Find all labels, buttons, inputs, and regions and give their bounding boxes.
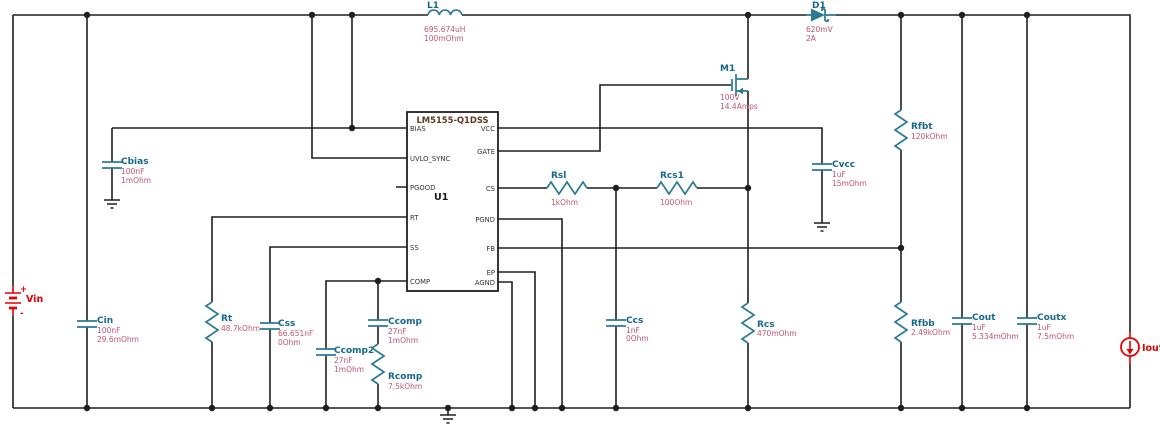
resistor-Rsl[interactable]: Rsl 1kOhm <box>547 171 587 207</box>
resistor-icon <box>895 302 907 342</box>
Rt-label: Rt <box>221 314 233 324</box>
pin-vcc: VCC <box>481 125 495 133</box>
mosfet-M1[interactable]: M1 100V 14.4Amps <box>720 64 758 111</box>
pin-pgood: PGOOD <box>410 184 435 192</box>
Vin-minus: - <box>20 309 24 319</box>
Rcs1-label: Rcs1 <box>660 171 684 181</box>
Cvcc-label: Cvcc <box>832 160 855 170</box>
pin-comp: COMP <box>410 278 430 286</box>
Ccs-label: Ccs <box>626 316 643 326</box>
resistor-Rfbt[interactable]: Rfbt 120kOhm <box>895 110 948 150</box>
capacitor-Cvcc[interactable]: Cvcc 1uF 15mOhm <box>812 160 867 188</box>
Vin-label: Vin <box>26 294 43 305</box>
ground-icon-cvcc <box>814 223 830 231</box>
ic-U1[interactable]: LM5155-Q1DSS U1 BIAS UVLO_SYNC PGOOD RT … <box>407 112 498 291</box>
Rfbt-value-0: 120kOhm <box>911 132 948 141</box>
L1-label: L1 <box>427 1 439 11</box>
D1-value-1: 2A <box>806 34 817 43</box>
capacitor-Css[interactable]: Css 66.651nF 0Ohm <box>260 319 313 347</box>
pin-rt: RT <box>410 214 419 222</box>
M1-value-0: 100V <box>720 93 740 102</box>
resistor-Rcomp[interactable]: Rcomp 7.5kOhm <box>372 344 423 391</box>
schematic-canvas: L1 695.674uH 100mOhm D1 620mV 2A M1 100V… <box>0 0 1160 438</box>
capacitor-Ccomp[interactable]: Ccomp 27nF 1mOhm <box>368 317 423 345</box>
D1-label: D1 <box>812 1 826 11</box>
L1-value-1: 100mOhm <box>424 34 464 43</box>
Rsl-value-0: 1kOhm <box>551 198 578 207</box>
capacitor-icon <box>77 321 97 327</box>
resistor-icon <box>547 182 587 194</box>
capacitor-icon <box>102 162 122 168</box>
pin-pgnd: PGND <box>475 216 495 224</box>
Cout-value-1: 5.334mOhm <box>972 332 1019 341</box>
capacitor-icon <box>606 320 626 326</box>
resistor-Rt[interactable]: Rt 48.7kOhm <box>206 302 260 342</box>
Cbias-value-1: 1mOhm <box>121 176 151 185</box>
Coutx-value-0: 1uF <box>1037 323 1051 332</box>
resistor-Rfbb[interactable]: Rfbb 2.49kOhm <box>895 302 950 342</box>
resistor-icon <box>895 110 907 150</box>
Ccomp2-label: Ccomp2 <box>334 346 374 356</box>
resistor-Rcs1[interactable]: Rcs1 100Ohm <box>657 171 697 207</box>
pin-ss: SS <box>410 244 419 252</box>
resistor-icon <box>206 302 218 342</box>
capacitor-icon <box>952 318 972 324</box>
Rfbt-label: Rfbt <box>911 122 933 132</box>
pin-cs: CS <box>486 185 495 193</box>
L1-value-0: 695.674uH <box>424 25 465 34</box>
Ccomp-label: Ccomp <box>388 317 423 327</box>
Rcomp-label: Rcomp <box>388 372 423 382</box>
Cin-value-0: 100nF <box>97 326 120 335</box>
current-source-Iout[interactable]: Iout <box>1121 332 1160 364</box>
voltage-source-Vin[interactable]: + - Vin <box>5 285 43 319</box>
capacitor-icon <box>368 320 388 326</box>
Css-label: Css <box>278 319 295 329</box>
Ccs-value-1: 0Ohm <box>626 334 649 343</box>
capacitor-Cbias[interactable]: Cbias 100nF 1mOhm <box>102 157 151 185</box>
ic-refdes: U1 <box>434 192 448 203</box>
capacitor-Coutx[interactable]: Coutx 1uF 7.5mOhm <box>1017 313 1074 341</box>
ic-part-number: LM5155-Q1DSS <box>416 115 488 125</box>
pin-gate: GATE <box>477 148 495 156</box>
Cout-label: Cout <box>972 313 996 323</box>
Coutx-label: Coutx <box>1037 313 1066 323</box>
Ccomp-value-1: 1mOhm <box>388 336 418 345</box>
pin-fb: FB <box>486 245 495 253</box>
pin-ep: EP <box>487 269 495 277</box>
Cbias-value-0: 100nF <box>121 167 144 176</box>
Css-value-1: 0Ohm <box>278 338 301 347</box>
ground-icon-cbias <box>104 200 120 208</box>
ground-icon-bottom <box>440 415 456 423</box>
resistor-icon <box>742 303 754 343</box>
Coutx-value-1: 7.5mOhm <box>1037 332 1074 341</box>
wires <box>13 15 1130 415</box>
D1-value-0: 620mV <box>806 25 834 34</box>
Cout-value-0: 1uF <box>972 323 986 332</box>
Rfbb-value-0: 2.49kOhm <box>911 328 950 337</box>
junction-dots <box>84 12 1030 411</box>
Rt-value-0: 48.7kOhm <box>221 324 260 333</box>
M1-value-1: 14.4Amps <box>720 102 758 111</box>
resistor-icon <box>372 344 384 384</box>
Ccomp-value-0: 27nF <box>388 327 407 336</box>
Ccomp2-value-1: 1mOhm <box>334 365 364 374</box>
iout-arrow-head <box>1127 349 1134 355</box>
diode-D1[interactable]: D1 620mV 2A <box>806 1 836 43</box>
Css-value-0: 66.651nF <box>278 329 313 338</box>
wire-layer <box>13 15 1130 415</box>
pin-agnd: AGND <box>475 279 495 287</box>
Cin-label: Cin <box>97 316 113 326</box>
inductor-L1[interactable]: L1 695.674uH 100mOhm <box>424 1 465 43</box>
Cvcc-value-1: 15mOhm <box>832 179 867 188</box>
capacitor-icon <box>812 164 832 170</box>
capacitor-icon <box>260 323 280 329</box>
schematic: L1 695.674uH 100mOhm D1 620mV 2A M1 100V… <box>0 0 1160 438</box>
resistor-icon <box>657 182 697 194</box>
Cbias-label: Cbias <box>121 157 149 167</box>
capacitor-icon <box>316 349 336 355</box>
pin-bias: BIAS <box>410 125 426 133</box>
Rsl-label: Rsl <box>551 171 566 181</box>
pin-uvlo-sync: UVLO_SYNC <box>410 155 450 163</box>
capacitor-Ccs[interactable]: Ccs 1nF 0Ohm <box>606 316 649 343</box>
capacitor-icon <box>1017 318 1037 324</box>
M1-label: M1 <box>720 64 735 74</box>
ic-body[interactable] <box>407 112 498 291</box>
Iout-label: Iout <box>1142 343 1160 354</box>
Rcs-value-0: 470mOhm <box>757 329 797 338</box>
Cvcc-value-0: 1uF <box>832 170 846 179</box>
Ccomp2-value-0: 27nF <box>334 356 353 365</box>
Rcomp-value-0: 7.5kOhm <box>388 382 422 391</box>
resistor-Rcs[interactable]: Rcs 470mOhm <box>742 303 797 343</box>
Cin-value-1: 29.6mOhm <box>97 335 139 344</box>
capacitor-Ccomp2[interactable]: Ccomp2 27nF 1mOhm <box>316 346 374 374</box>
Rcs1-value-0: 100Ohm <box>660 198 692 207</box>
